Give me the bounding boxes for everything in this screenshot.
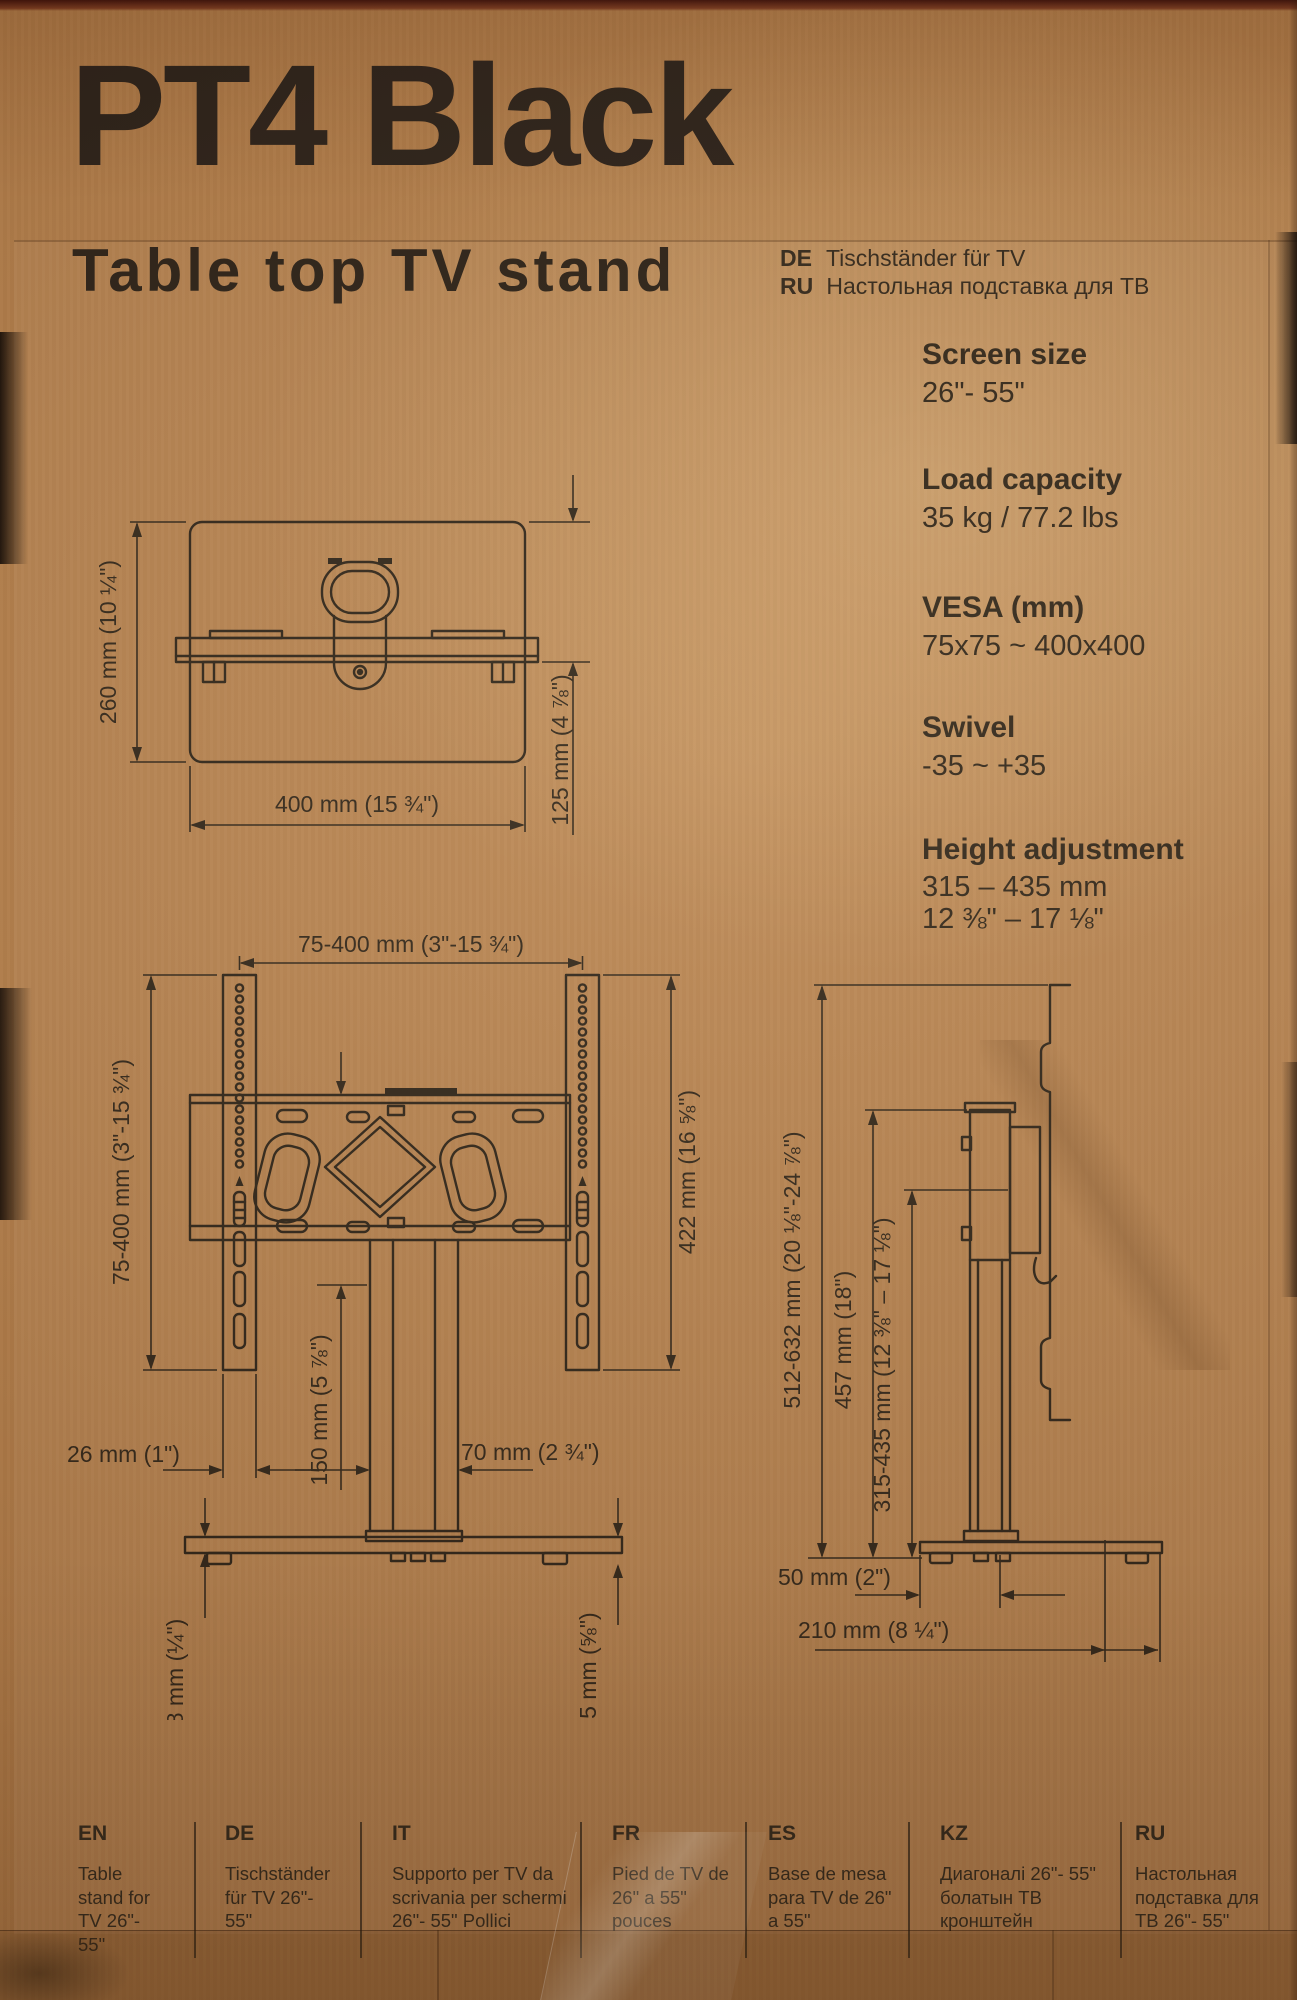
subtitle-translations: DE Tischständer für TV RU Настольная под…: [780, 244, 1149, 300]
lang-cell-fr: FR Pied de TV de 26" a 55" pouces: [612, 1822, 732, 1933]
spec-height-adjustment: Height adjustment 315 – 435 mm 12 ⅜" – 1…: [922, 833, 1242, 935]
lang-code: ES: [768, 1822, 898, 1846]
lang-description: Supporto per TV da scrivania per schermi…: [392, 1862, 570, 1933]
spec-label: VESA (mm): [922, 591, 1242, 625]
spec-label: Swivel: [922, 711, 1242, 745]
lang-description: Base de mesa para TV de 26" a 55": [768, 1862, 898, 1933]
shadow-smudge: [0, 1933, 130, 2000]
product-subtitle: Table top TV stand: [72, 236, 676, 305]
lang-description: Pied de TV de 26" a 55" pouces: [612, 1862, 732, 1933]
side-view-stand-outline: [920, 985, 1162, 1563]
cardboard-crease: [1052, 1930, 1054, 2000]
box-flap-crease: [0, 1930, 1297, 2000]
lang-cell-es: ES Base de mesa para TV de 26" a 55": [768, 1822, 898, 1933]
spec-load-capacity: Load capacity 35 kg / 77.2 lbs: [922, 463, 1242, 534]
spec-value: 26"- 55": [922, 377, 1242, 409]
lang-code: DE: [225, 1822, 343, 1846]
top-view-stand-outline: [176, 522, 538, 762]
spec-label: Height adjustment: [922, 833, 1242, 867]
front-view-bracket-outline: [185, 975, 622, 1564]
lang-code: RU: [780, 272, 820, 300]
front-vesa-height-label: 75-400 mm (3"-15 ¾"): [108, 1059, 134, 1285]
lang-description: Диагоналі 26"- 55" болатын ТВ кронштейн: [940, 1862, 1100, 1933]
front-base-thickness-label: 8 mm (¼"): [162, 1619, 188, 1720]
front-column-width-label: 70 mm (2 ¾"): [461, 1439, 600, 1465]
lang-description: Настольная подставка для ТВ 26"- 55": [1135, 1862, 1285, 1933]
spec-value: 75x75 ~ 400x400: [922, 630, 1242, 662]
box-top-edge-shadow: [0, 0, 1297, 11]
translation-text: Настольная подставка для ТВ: [826, 273, 1149, 299]
top-view-depth-label: 125 mm (4 ⅞"): [547, 674, 573, 825]
side-base-depth-label: 210 mm (8 ¼"): [798, 1617, 949, 1643]
lang-description: Tischständer für TV 26"- 55": [225, 1862, 343, 1933]
translation-ru: RU Настольная подставка для ТВ: [780, 272, 1149, 300]
spec-label: Load capacity: [922, 463, 1242, 497]
product-title: PT4 Black: [70, 44, 731, 188]
package-photo: PT4 Black Table top TV stand DE Tischstä…: [0, 0, 1297, 2000]
lang-code: RU: [1135, 1822, 1285, 1846]
front-strip-width-label: 26 mm (1"): [67, 1441, 180, 1467]
side-overall-height-label: 512-632 mm (20 ⅛"-24 ⅞"): [779, 1131, 805, 1408]
lang-cell-ru: RU Настольная подставка для ТВ 26"- 55": [1135, 1822, 1285, 1933]
translation-de: DE Tischständer für TV: [780, 244, 1149, 272]
lang-cell-kz: KZ Диагоналі 26"- 55" болатын ТВ кронште…: [940, 1822, 1100, 1933]
side-height-range-label: 315-435 mm (12 ⅜" – 17 ⅛"): [869, 1217, 895, 1512]
translation-text: Tischständer für TV: [826, 245, 1025, 271]
spec-vesa: VESA (mm) 75x75 ~ 400x400: [922, 591, 1242, 662]
spec-value: 35 kg / 77.2 lbs: [922, 502, 1242, 534]
front-plate-offset-label: 150 mm (5 ⅞"): [306, 1334, 332, 1485]
spec-label: Screen size: [922, 338, 1242, 372]
lang-code: KZ: [940, 1822, 1100, 1846]
spec-value: 315 – 435 mm: [922, 871, 1242, 903]
cardboard-crease: [437, 1930, 439, 2000]
top-view-width-label: 400 mm (15 ¾"): [275, 791, 439, 817]
top-view-height-label: 260 mm (10 ¼"): [95, 560, 121, 724]
front-bracket-height-label: 422 mm (16 ⅝"): [674, 1090, 700, 1254]
box-right-edge-shadow: [1289, 0, 1297, 2000]
lang-code: IT: [392, 1822, 570, 1846]
lang-cell-de: DE Tischständer für TV 26"- 55": [225, 1822, 343, 1933]
spec-screen-size: Screen size 26"- 55": [922, 338, 1242, 409]
side-view-diagram: 512-632 mm (20 ⅛"-24 ⅞") 457 mm (18") 31…: [760, 940, 1190, 1700]
front-view-diagram: 75-400 mm (3"-15 ¾") 75-400 mm (3"-15 ¾"…: [55, 930, 715, 1720]
spec-swivel: Swivel -35 ~ +35: [922, 711, 1242, 782]
lang-cell-it: IT Supporto per TV da scrivania per sche…: [392, 1822, 570, 1933]
lang-code: FR: [612, 1822, 732, 1846]
spec-value: -35 ~ +35: [922, 750, 1242, 782]
front-base-total-label: 15 mm (⅝"): [575, 1612, 601, 1720]
front-vesa-width-label: 75-400 mm (3"-15 ¾"): [298, 931, 524, 957]
spec-value-inches: 12 ⅜" – 17 ⅛": [922, 903, 1242, 935]
label-fold-line: [1268, 240, 1270, 1930]
lang-code: DE: [780, 244, 820, 272]
front-view-dimensions: 75-400 mm (3"-15 ¾") 75-400 mm (3"-15 ¾"…: [67, 931, 700, 1720]
top-view-diagram: 260 mm (10 ¼") 400 mm (15 ¾") 125 mm (4 …: [60, 420, 700, 850]
lang-code: EN: [78, 1822, 166, 1846]
side-base-front-label: 50 mm (2"): [778, 1564, 891, 1590]
side-column-height-label: 457 mm (18"): [830, 1271, 856, 1410]
